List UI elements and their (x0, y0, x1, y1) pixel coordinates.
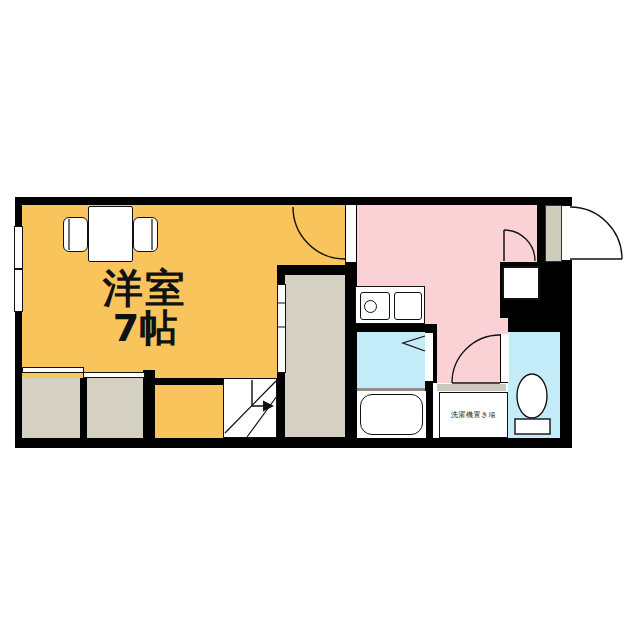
closet-right (87, 378, 143, 438)
laundry-area-edge (437, 384, 506, 391)
western-room-floor-pocket (155, 385, 223, 438)
entrance-door-arc (570, 207, 622, 259)
chair-right (133, 217, 158, 252)
kitchen-sink (394, 292, 422, 320)
stove-burner-icon (364, 300, 377, 313)
kitchen-floor-top (357, 205, 537, 262)
wall-stair-top (143, 378, 223, 385)
hallway-corridor (437, 324, 500, 383)
toilet-door-opening (501, 334, 509, 382)
room-label: 洋室 7帖 (60, 268, 230, 347)
entrance-opening (562, 206, 572, 260)
bathroom-floor (357, 332, 425, 388)
kitchen-door-opening (346, 205, 356, 262)
laundry-label: 洗濯機置き場 (451, 410, 496, 420)
shoe-cabinet (502, 266, 540, 300)
staircase-area (223, 378, 277, 438)
dining-table (88, 206, 133, 262)
chair-left (63, 217, 88, 252)
toilet-room-floor (508, 332, 560, 438)
entrance-step (545, 205, 562, 262)
hallway-finger (500, 318, 508, 334)
closet-sliding-door-right (83, 372, 145, 378)
closet-sliding-door-left (22, 367, 84, 373)
window-left-divider (15, 268, 22, 270)
bathtub (360, 394, 423, 435)
floorplan-canvas: 洗濯機置き場 洋室 7帖 (0, 0, 640, 640)
bathroom-door-strip (425, 333, 433, 381)
room-size-text: 7帖 (60, 309, 230, 347)
tall-closet (285, 275, 345, 437)
room-name-text: 洋室 (60, 268, 230, 308)
tall-closet-door-strip (277, 284, 286, 373)
closet-left (22, 378, 80, 438)
laundry-box: 洗濯機置き場 (439, 392, 508, 438)
